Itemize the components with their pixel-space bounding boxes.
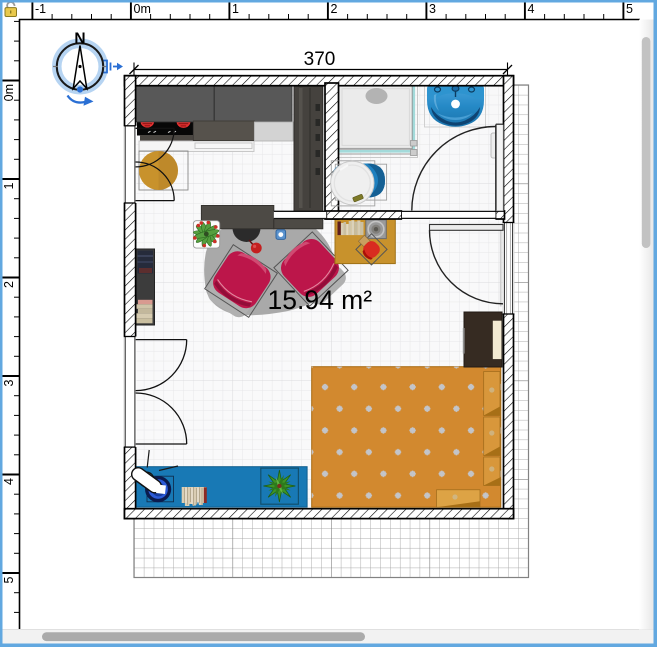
svg-text:1: 1: [2, 182, 16, 189]
svg-text:3: 3: [2, 379, 16, 386]
svg-text:4: 4: [528, 2, 535, 16]
svg-text:4: 4: [2, 478, 16, 485]
svg-text:-1: -1: [35, 2, 46, 16]
svg-text:0m: 0m: [134, 2, 151, 16]
svg-text:15.94 m²: 15.94 m²: [268, 285, 373, 315]
svg-text:3: 3: [429, 2, 436, 16]
svg-text:370: 370: [304, 49, 336, 70]
svg-text:1: 1: [232, 2, 239, 16]
svg-text:5: 5: [626, 2, 633, 16]
svg-text:N: N: [74, 31, 85, 48]
svg-text:5: 5: [2, 576, 16, 583]
svg-text:2: 2: [331, 2, 338, 16]
svg-text:0m: 0m: [2, 84, 16, 101]
svg-text:2: 2: [2, 281, 16, 288]
